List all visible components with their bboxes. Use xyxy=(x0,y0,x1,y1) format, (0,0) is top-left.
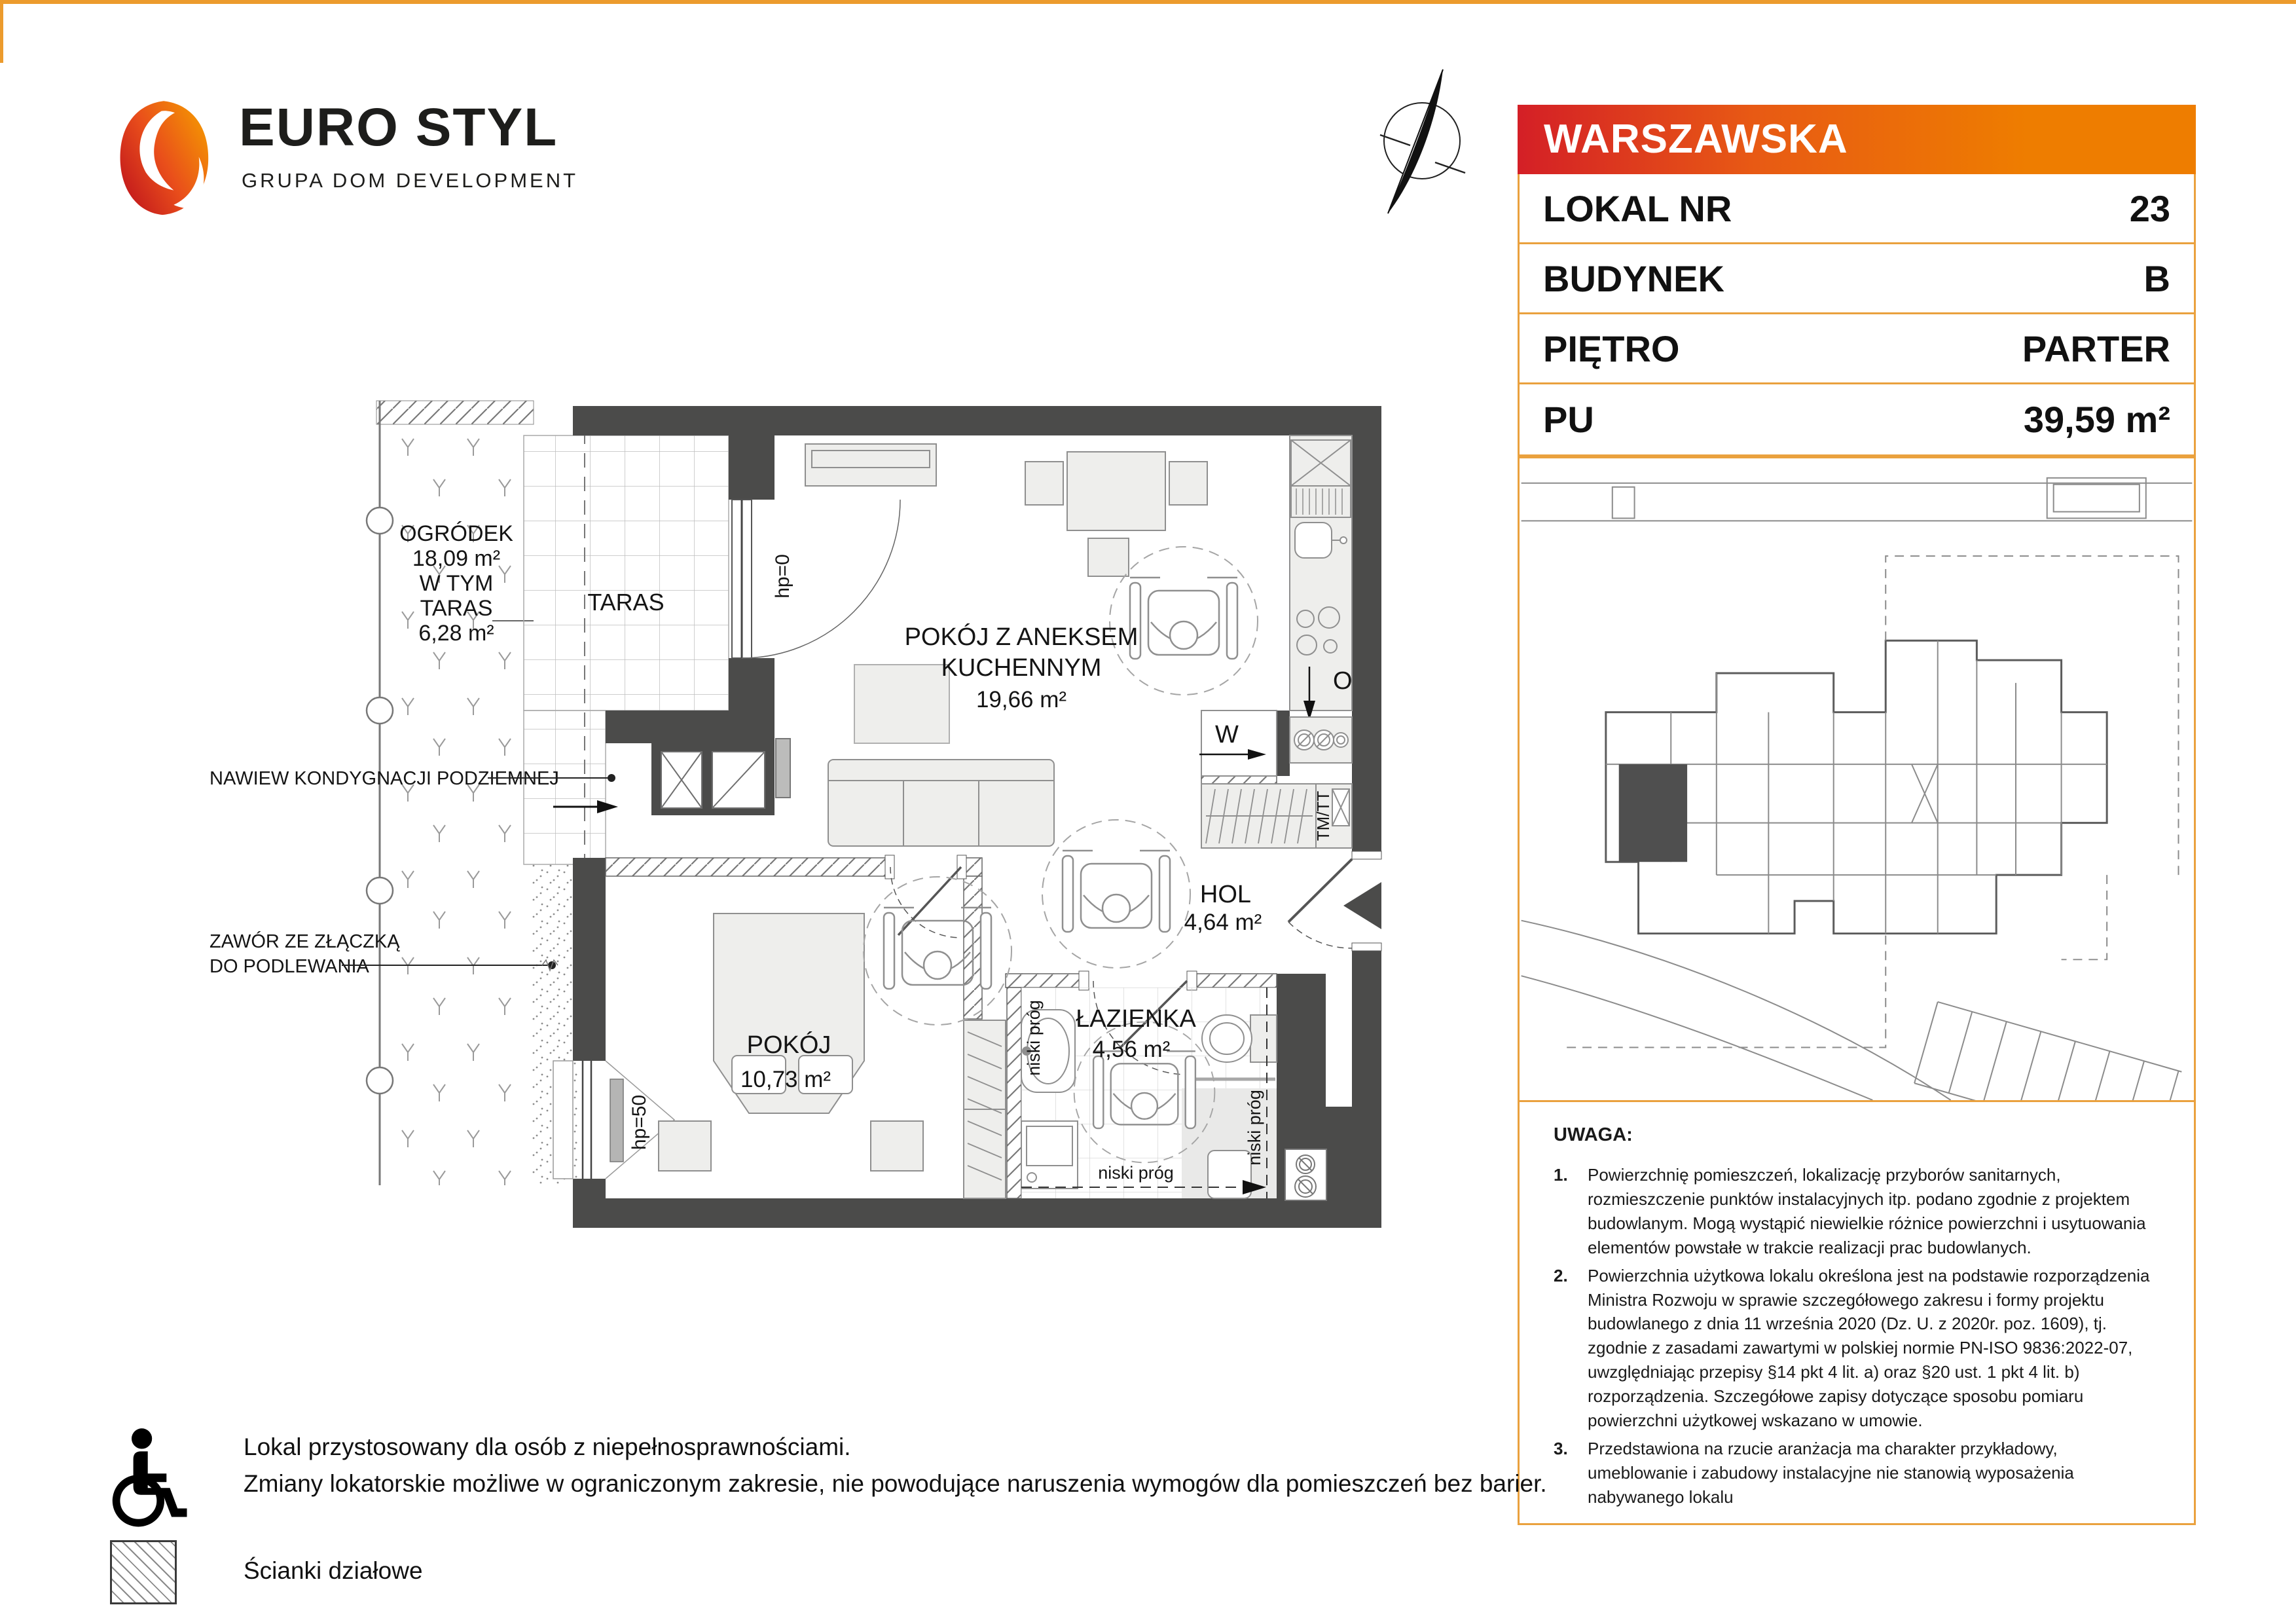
highlighted-unit xyxy=(1619,764,1687,862)
row-label: PU xyxy=(1543,398,1594,441)
estate-name-banner: WARSZAWSKA xyxy=(1518,105,2196,174)
table-row-pietro: PIĘTRO PARTER xyxy=(1520,314,2194,384)
row-value: PARTER xyxy=(2022,327,2170,370)
note-item: 1. Powierzchnię pomieszczeń, lokalizację… xyxy=(1554,1163,2162,1260)
washer-niche: W xyxy=(1199,710,1277,776)
svg-text:niski próg: niski próg xyxy=(1024,1000,1044,1076)
entrance-arrow-icon xyxy=(1343,882,1381,929)
garden-top-edge xyxy=(376,401,534,424)
row-label: PIĘTRO xyxy=(1543,327,1679,370)
row-label: LOKAL NR xyxy=(1543,187,1732,230)
svg-text:hp=50: hp=50 xyxy=(629,1095,650,1150)
bedroom-furniture xyxy=(659,913,1006,1198)
table-row-budynek: BUDYNEK B xyxy=(1520,244,2194,314)
site-plan-box xyxy=(1518,456,2196,1102)
accessibility-line2: Zmiany lokatorskie możliwe w ograniczony… xyxy=(244,1466,1815,1502)
svg-text:4,56 m²: 4,56 m² xyxy=(1093,1037,1171,1062)
row-value: 23 xyxy=(2130,187,2170,230)
svg-text:O: O xyxy=(1333,667,1353,695)
svg-text:niski próg: niski próg xyxy=(1245,1090,1264,1166)
row-label: BUDYNEK xyxy=(1543,257,1724,300)
svg-text:hp=0: hp=0 xyxy=(772,554,793,599)
svg-text:ŁAZIENKA: ŁAZIENKA xyxy=(1076,1005,1196,1033)
terrace-label: TARAS xyxy=(587,589,664,616)
svg-text:ZAWÓR ZE ZŁĄCZKĄ: ZAWÓR ZE ZŁĄCZKĄ xyxy=(210,931,400,952)
site-plan xyxy=(1520,458,2194,1100)
unit-info-table: LOKAL NR 23 BUDYNEK B PIĘTRO PARTER PU 3… xyxy=(1518,174,2196,456)
svg-text:10,73 m²: 10,73 m² xyxy=(740,1067,831,1092)
svg-text:18,09 m²: 18,09 m² xyxy=(412,546,500,571)
svg-text:19,66 m²: 19,66 m² xyxy=(976,687,1066,712)
row-value: B xyxy=(2144,257,2170,300)
bedroom-window: hp=50 xyxy=(553,1061,674,1179)
balcony-door: hp=0 xyxy=(732,500,900,658)
svg-text:HOL: HOL xyxy=(1200,881,1251,908)
svg-text:KUCHENNYM: KUCHENNYM xyxy=(941,654,1102,682)
wheelchair-accessibility-icon xyxy=(106,1426,191,1531)
notes-title: UWAGA: xyxy=(1554,1124,2162,1146)
svg-text:POKÓJ Z ANEKSEM: POKÓJ Z ANEKSEM xyxy=(905,623,1139,651)
svg-text:POKÓJ: POKÓJ xyxy=(747,1031,831,1059)
table-row-pu: PU 39,59 m² xyxy=(1520,384,2194,454)
accessibility-note: Lokal przystosowany dla osób z niepełnos… xyxy=(244,1429,1815,1502)
table-row-lokal: LOKAL NR 23 xyxy=(1520,174,2194,244)
parking-stalls xyxy=(1914,1002,2181,1100)
svg-text:OGRÓDEK: OGRÓDEK xyxy=(399,521,513,546)
note-item: 2. Powierzchnia użytkowa lokalu określon… xyxy=(1554,1264,2162,1433)
wheelchair-icon xyxy=(1042,820,1190,968)
tmtt-label: TM/TT xyxy=(1313,791,1333,841)
svg-text:TARAS: TARAS xyxy=(420,596,493,621)
svg-text:W TYM: W TYM xyxy=(420,571,494,596)
row-value: 39,59 m² xyxy=(2024,398,2170,441)
accessibility-line1: Lokal przystosowany dla osób z niepełnos… xyxy=(244,1429,1815,1466)
partition-legend-label: Ścianki działowe xyxy=(244,1557,423,1585)
floorplan-sheet: EURO STYL GRUPA DOM DEVELOPMENT xyxy=(0,0,2296,1624)
bath-meter-box xyxy=(1285,1149,1326,1200)
svg-text:6,28 m²: 6,28 m² xyxy=(418,621,494,646)
meter-box xyxy=(1290,717,1352,763)
svg-text:DO PODLEWANIA: DO PODLEWANIA xyxy=(210,956,370,977)
unit-info-panel: WARSZAWSKA LOKAL NR 23 BUDYNEK B PIĘTRO … xyxy=(1518,105,2196,1525)
terrace-tiles xyxy=(524,435,729,710)
svg-text:4,64 m²: 4,64 m² xyxy=(1184,910,1262,935)
installation-shaft xyxy=(661,752,765,808)
wheelchair-icon xyxy=(864,877,1011,1025)
svg-text:niski próg: niski próg xyxy=(1098,1163,1174,1183)
wheelchair-icon xyxy=(1110,547,1258,695)
bedroom-door xyxy=(885,855,966,938)
svg-text:W: W xyxy=(1215,721,1239,748)
partition-hatch-swatch xyxy=(110,1540,177,1604)
